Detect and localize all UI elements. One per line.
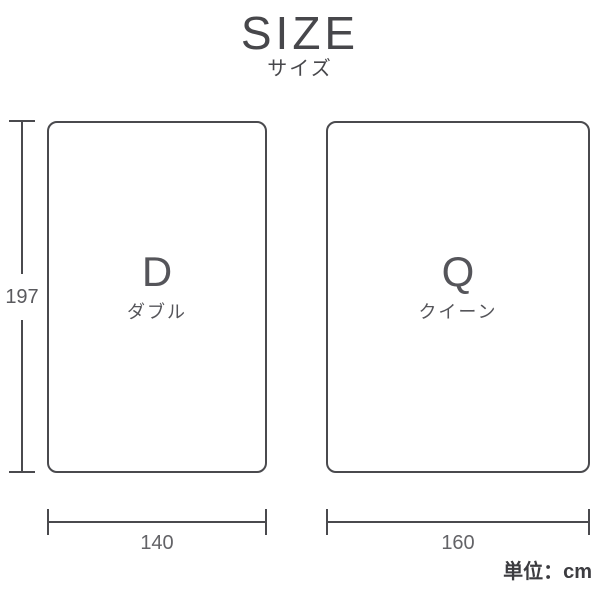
width-dimension-value-queen: 160 (326, 531, 590, 555)
width-dimension-line-double (47, 521, 267, 523)
height-dimension-value: 197 (3, 274, 40, 320)
width-dimension-double: 140 (47, 509, 267, 535)
bed-size-letter-queen: Q (442, 251, 475, 293)
page-title: SIZE (0, 8, 600, 58)
unit-note: 単位：cm (503, 560, 592, 584)
size-diagram: SIZE サイズ 197 D ダブル Q クイーン 140 160 単位：cm (0, 0, 600, 600)
bed-size-name-queen: クイーン (418, 302, 497, 322)
height-dimension-cap-bottom (9, 471, 35, 473)
bed-outline-double: D ダブル (47, 121, 267, 473)
height-dimension-cap-top (9, 120, 35, 122)
width-dimension-value-double: 140 (47, 531, 267, 555)
bed-size-name-double: ダブル (127, 302, 187, 322)
page-subtitle: サイズ (0, 57, 600, 81)
height-dimension: 197 (9, 120, 35, 473)
width-dimension-queen: 160 (326, 509, 590, 535)
bed-outline-queen: Q クイーン (326, 121, 590, 473)
bed-size-letter-double: D (142, 251, 172, 293)
width-dimension-line-queen (326, 521, 590, 523)
